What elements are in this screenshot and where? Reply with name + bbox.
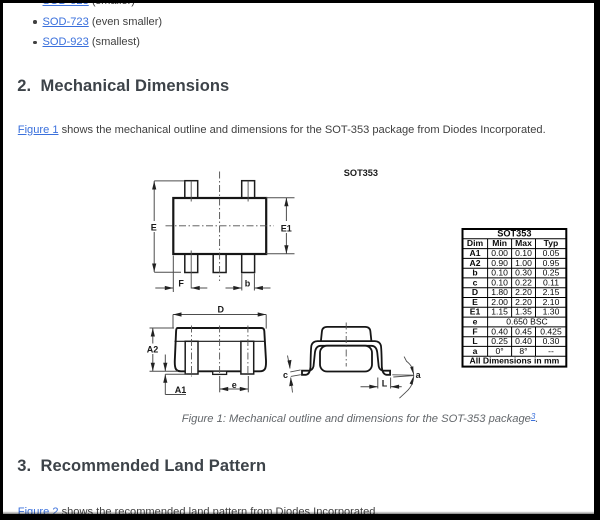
svg-text:8°: 8° — [519, 346, 527, 356]
svg-text:Dim: Dim — [467, 238, 484, 248]
svg-text:0.10: 0.10 — [515, 248, 532, 258]
svg-text:0.30: 0.30 — [543, 336, 560, 346]
svg-text:0.25: 0.25 — [491, 336, 508, 346]
svg-text:All Dimensions in mm: All Dimensions in mm — [470, 356, 560, 366]
svg-text:1.15: 1.15 — [491, 307, 508, 317]
svg-text:1.80: 1.80 — [491, 287, 508, 297]
svg-text:c: c — [283, 370, 288, 380]
svg-text:F: F — [472, 326, 477, 336]
svg-text:b: b — [245, 278, 251, 288]
svg-text:L: L — [472, 336, 477, 346]
svg-text:E: E — [151, 222, 157, 232]
svg-text:2.15: 2.15 — [543, 287, 560, 297]
svg-text:A1: A1 — [470, 248, 481, 258]
svg-text:e: e — [473, 317, 478, 327]
svg-text:L: L — [382, 378, 388, 388]
svg-text:0.05: 0.05 — [543, 248, 560, 258]
svg-text:SOT353: SOT353 — [497, 229, 531, 239]
svg-text:A1: A1 — [175, 385, 187, 395]
svg-text:0.30: 0.30 — [515, 268, 532, 278]
svg-text:0.95: 0.95 — [543, 258, 560, 268]
svg-text:E: E — [472, 297, 478, 307]
svg-text:Typ: Typ — [544, 238, 559, 248]
svg-text:E1: E1 — [470, 307, 481, 317]
svg-text:0°: 0° — [495, 346, 503, 356]
svg-text:D: D — [218, 304, 225, 314]
svg-text:0.25: 0.25 — [543, 268, 560, 278]
svg-text:2.20: 2.20 — [515, 287, 532, 297]
svg-text:a: a — [416, 370, 422, 380]
svg-text:1.30: 1.30 — [543, 307, 560, 317]
svg-text:0.10: 0.10 — [491, 277, 508, 287]
svg-text:F: F — [178, 278, 184, 288]
svg-text:Max: Max — [515, 238, 532, 248]
svg-text:Min: Min — [492, 238, 507, 248]
svg-text:0.10: 0.10 — [491, 268, 508, 278]
svg-text:0.45: 0.45 — [515, 326, 532, 336]
svg-text:E1: E1 — [281, 224, 292, 234]
svg-text:c: c — [473, 277, 478, 287]
svg-text:2.20: 2.20 — [515, 297, 532, 307]
svg-text:0.40: 0.40 — [515, 336, 532, 346]
svg-text:e: e — [232, 380, 237, 390]
svg-text:0.90: 0.90 — [491, 258, 508, 268]
svg-text:A2: A2 — [147, 344, 159, 354]
svg-text:0.40: 0.40 — [491, 326, 508, 336]
svg-text:0.425: 0.425 — [540, 326, 562, 336]
svg-text:0.650 BSC: 0.650 BSC — [506, 317, 548, 327]
svg-text:2.00: 2.00 — [491, 297, 508, 307]
svg-text:A2: A2 — [470, 258, 481, 268]
svg-text:D: D — [472, 287, 478, 297]
svg-text:b: b — [472, 268, 477, 278]
svg-text:--: -- — [548, 346, 554, 356]
svg-text:0.00: 0.00 — [491, 248, 508, 258]
svg-text:0.11: 0.11 — [543, 277, 559, 287]
svg-text:2.10: 2.10 — [543, 297, 560, 307]
svg-text:1.35: 1.35 — [515, 307, 532, 317]
svg-text:a: a — [473, 346, 478, 356]
svg-text:0.22: 0.22 — [515, 277, 532, 287]
svg-text:SOT353: SOT353 — [344, 168, 378, 178]
svg-text:1.00: 1.00 — [515, 258, 532, 268]
